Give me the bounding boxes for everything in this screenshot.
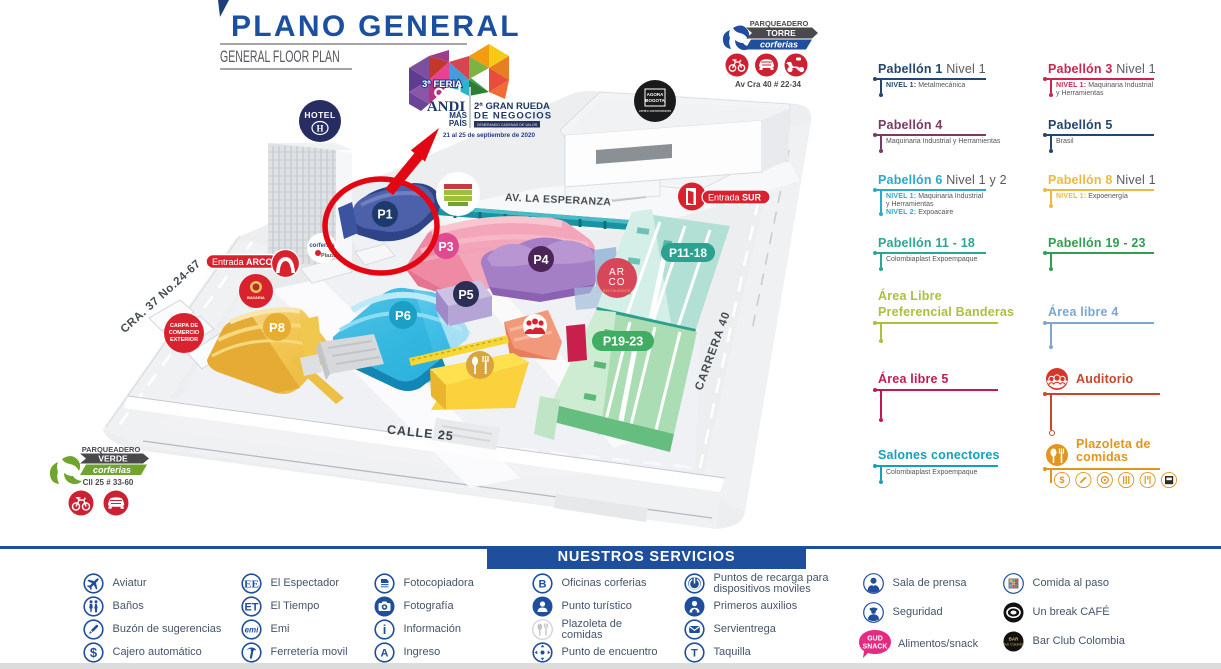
svg-text:TORRE: TORRE [766,28,796,38]
svg-text:EXTERIOR: EXTERIOR [170,337,198,343]
svg-text:$: $ [89,645,97,660]
svg-text:PAÍS: PAÍS [449,119,468,128]
svg-text:PARQUEADERO: PARQUEADERO [750,19,809,28]
svg-text:RESTAURANTE: RESTAURANTE [603,289,631,293]
svg-text:Entrada ARCO: Entrada ARCO [212,257,273,267]
svg-text:Av Cra 40 # 22-34: Av Cra 40 # 22-34 [735,80,802,89]
svg-text:SNACK: SNACK [863,644,888,651]
svg-text:P6: P6 [395,308,411,323]
svg-text:GUD: GUD [867,636,883,643]
svg-text:ET: ET [244,601,258,613]
svg-text:COMERCIO: COMERCIO [169,330,200,336]
svg-text:BAVARIA: BAVARIA [247,295,265,300]
svg-text:i: i [382,622,386,637]
svg-text:P1: P1 [377,208,392,222]
svg-text:P3: P3 [438,240,453,254]
svg-text:EE: EE [244,578,259,590]
svg-text:H: H [316,124,323,134]
svg-text:P11-18: P11-18 [669,246,707,260]
svg-text:BOGOTA: BOGOTA [645,98,665,103]
svg-text:corferias: corferias [760,40,798,50]
svg-text:CARPA DE: CARPA DE [170,323,198,329]
svg-text:DE NEGOCIOS: DE NEGOCIOS [474,111,552,122]
svg-text:B: B [538,578,546,590]
svg-text:Club Colombia: Club Colombia [1003,642,1024,646]
svg-text:centro convenciones: centro convenciones [639,109,671,113]
svg-text:3ª FERIA: 3ª FERIA [422,79,462,90]
svg-text:T: T [691,647,698,659]
svg-text:$: $ [1059,475,1064,485]
svg-text:GENERANDO CADENAS DE VALOR: GENERANDO CADENAS DE VALOR [477,123,538,127]
svg-text:A: A [380,647,388,659]
svg-text:HOTEL: HOTEL [304,110,335,120]
svg-text:21 al 25 de septiembre de 2020: 21 al 25 de septiembre de 2020 [443,132,536,139]
svg-text:P4: P4 [533,253,548,267]
svg-text:P19-23: P19-23 [603,335,643,349]
svg-text:P5: P5 [458,288,473,302]
svg-text:Entrada SUR: Entrada SUR [708,193,762,203]
svg-text:CO: CO [609,277,626,288]
svg-text:VERDE: VERDE [98,454,128,464]
svg-text:BAR: BAR [1008,636,1018,641]
svg-text:corferias: corferias [93,465,131,475]
svg-text:Cll 25 # 33-60: Cll 25 # 33-60 [83,478,134,487]
svg-text:P8: P8 [269,320,285,335]
svg-text:emi: emi [244,625,259,634]
svg-text:AGORA: AGORA [647,92,665,97]
